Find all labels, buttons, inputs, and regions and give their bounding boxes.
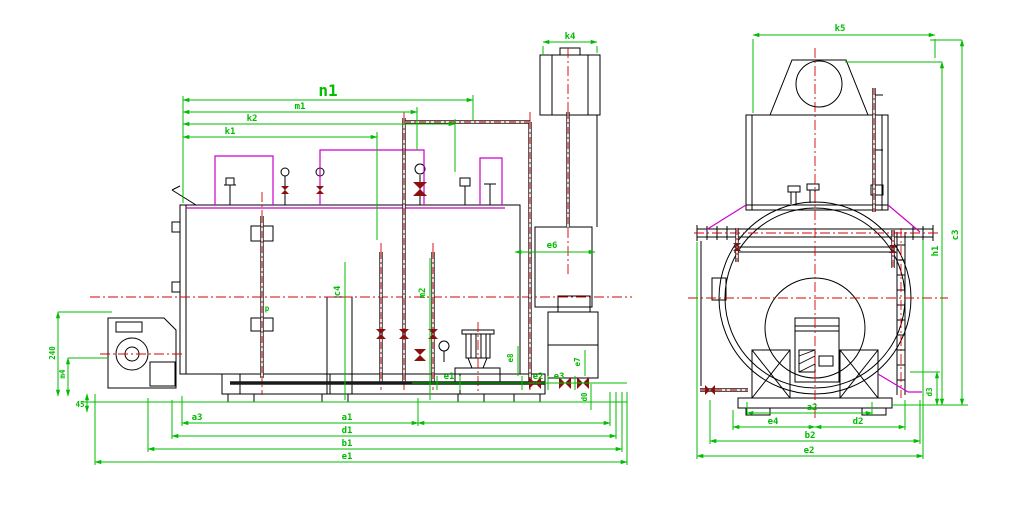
dim-label-e7: e7 <box>573 357 582 366</box>
dim-label-c4: c4 <box>333 285 343 296</box>
dim-label-e3-pipe: e3 <box>554 372 565 382</box>
dim-label-d2: d2 <box>853 417 864 427</box>
boiler-shell-side <box>172 186 520 374</box>
dim-label-h1: h1 <box>931 246 941 257</box>
dim-label-e2-pipe: e2 <box>533 372 544 382</box>
dim-label-d0: d0 <box>580 392 589 402</box>
dim-label-e1-pipe: e1 <box>444 372 455 382</box>
dim-label-c3: c3 <box>951 230 961 241</box>
dim-label-e6: e6 <box>547 241 558 251</box>
dim-label-m2: m2 <box>418 288 428 299</box>
dim-label-p: p <box>265 304 270 313</box>
side-view: n1 m1 k2 k1 k4 e6 c4 m2 e1 e2 e3 e8 e7 d… <box>48 32 632 465</box>
boiler-ga-drawing: n1 m1 k2 k1 k4 e6 c4 m2 e1 e2 e3 e8 e7 d… <box>0 0 1011 520</box>
burner-front <box>795 318 839 382</box>
dim-label-e2: e2 <box>804 446 815 456</box>
burner-side <box>108 318 176 388</box>
dim-label-m1: m1 <box>295 102 306 112</box>
chimney-hood <box>770 60 868 115</box>
dim-label-k5: k5 <box>835 24 846 34</box>
dim-label-a3: a3 <box>192 413 203 423</box>
dim-label-a1: a1 <box>342 413 353 423</box>
dim-label-e1: e1 <box>342 452 353 462</box>
dim-label-a2: a2 <box>807 403 818 413</box>
boiler-shell-front <box>712 184 911 394</box>
dim-label-k4: k4 <box>565 32 576 42</box>
dim-label-b2: b2 <box>805 431 816 441</box>
dim-label-d1: d1 <box>342 426 353 436</box>
drawing-svg: n1 m1 k2 k1 k4 e6 c4 m2 e1 e2 e3 e8 e7 d… <box>0 0 1011 520</box>
dim-label-45: 45 <box>75 400 84 409</box>
dim-label-k2: k2 <box>247 114 258 124</box>
pressure-gauge-icon <box>439 341 449 351</box>
dim-label-d3: d3 <box>925 387 934 397</box>
base-skid-side <box>222 374 545 402</box>
dim-label-e4: e4 <box>768 417 779 427</box>
front-view: k5 h1 c3 d3 a2 e4 d2 b2 e2 <box>688 24 968 459</box>
dim-label-240: 240 <box>48 346 57 360</box>
steam-and-feed-pipes-side <box>230 112 568 383</box>
pipes-front <box>700 88 893 390</box>
dim-label-e8: e8 <box>506 353 515 363</box>
dim-label-m4: m4 <box>58 369 67 379</box>
dim-label-n1: n1 <box>318 81 337 100</box>
dim-label-b1: b1 <box>342 439 353 449</box>
stack-support-box <box>327 297 352 394</box>
dim-label-k1: k1 <box>225 127 236 137</box>
